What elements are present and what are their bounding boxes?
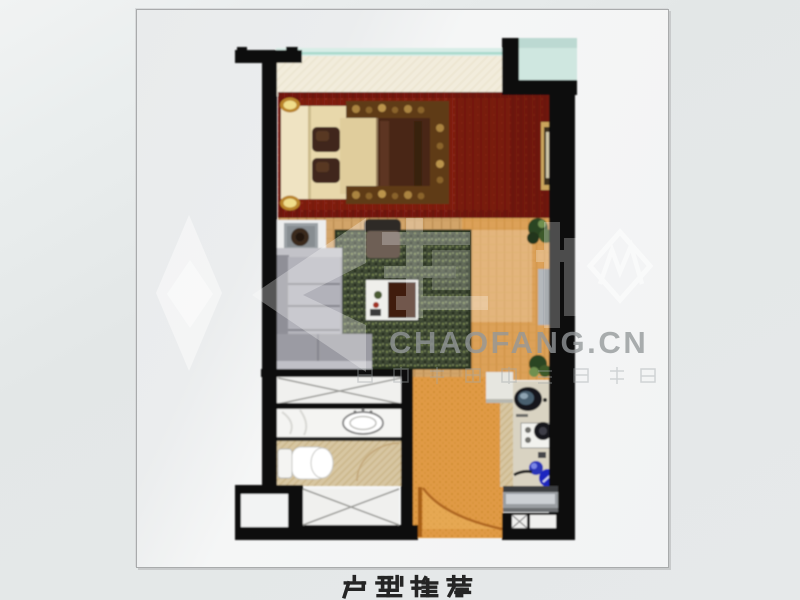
svg-text:CHAOFANG.CN: CHAOFANG.CN [389, 325, 648, 360]
